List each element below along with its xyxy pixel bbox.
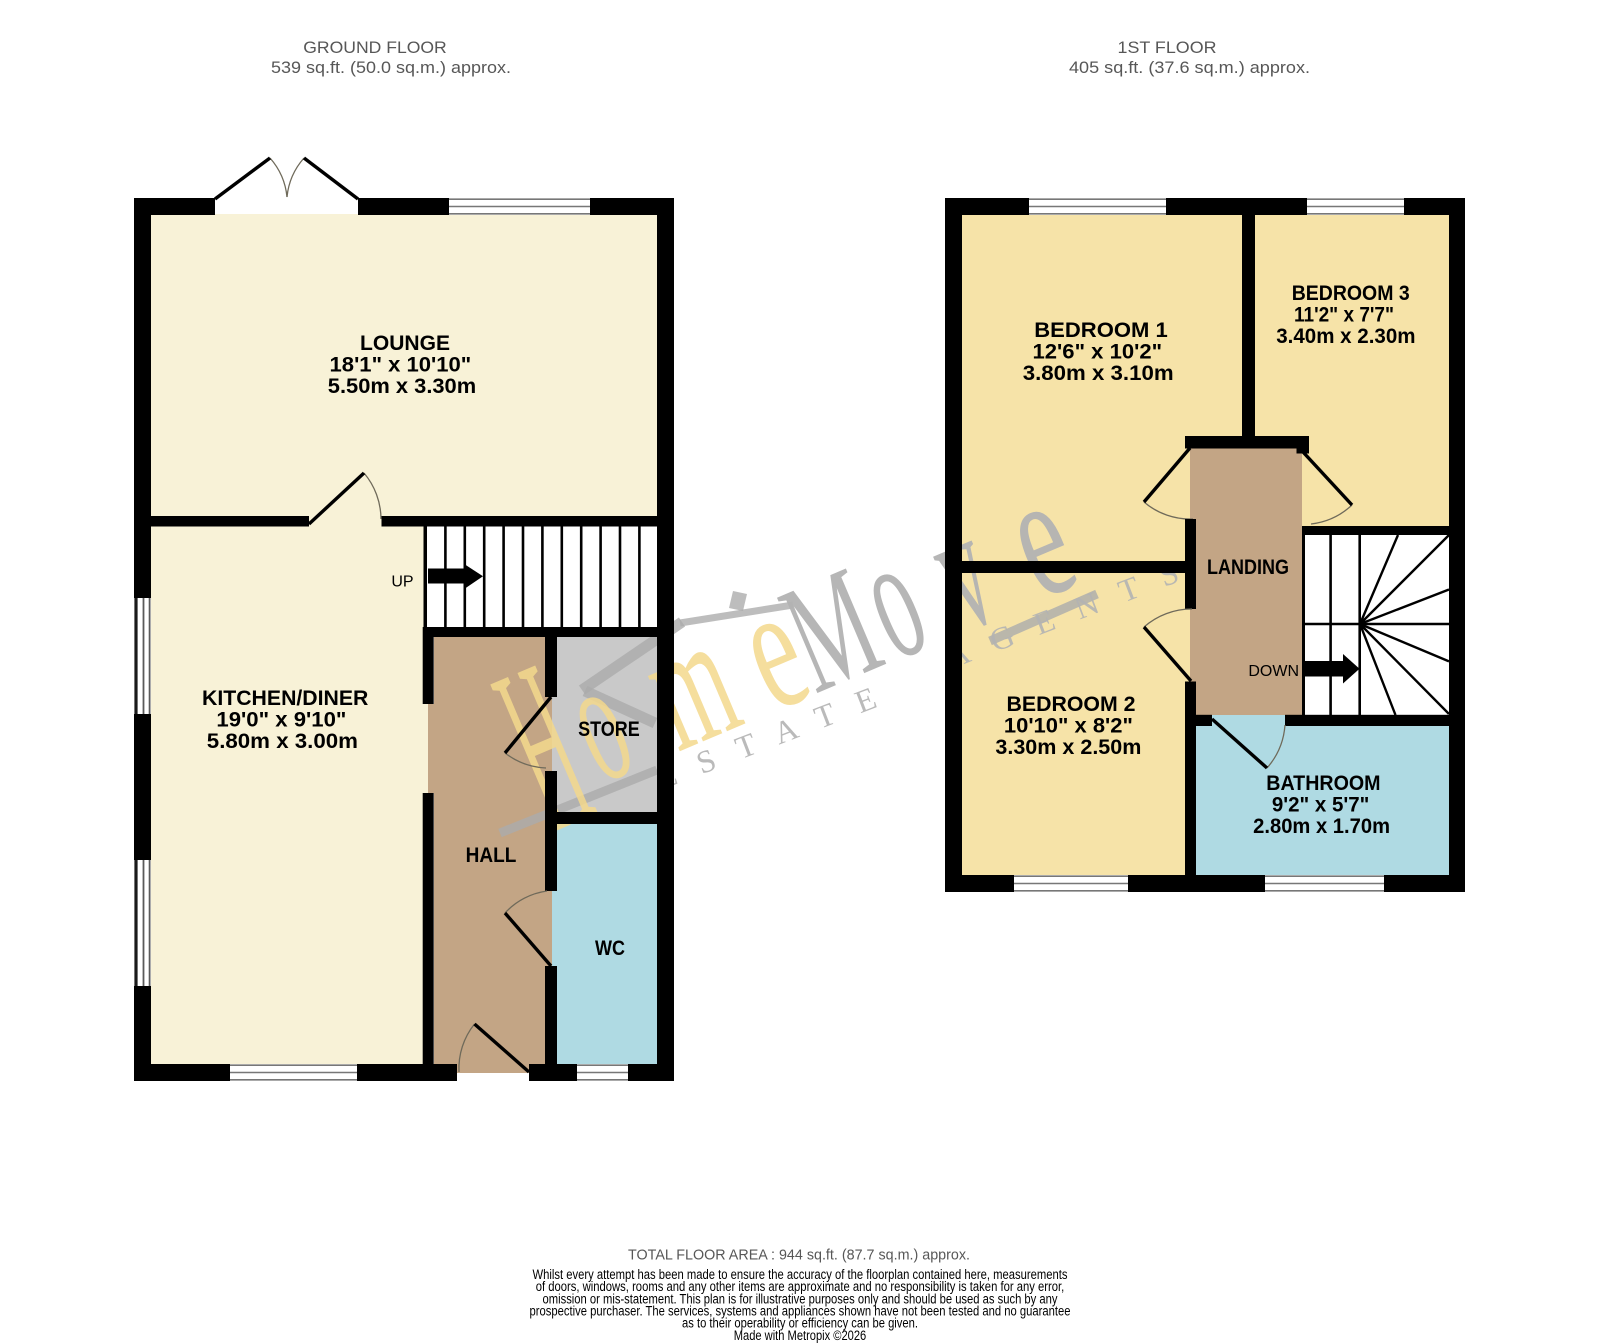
svg-text:1ST FLOOR: 1ST FLOOR bbox=[1118, 38, 1217, 57]
svg-text:3.40m x 2.30m: 3.40m x 2.30m bbox=[1276, 324, 1415, 348]
svg-text:9'2" x 5'7": 9'2" x 5'7" bbox=[1272, 793, 1370, 817]
svg-text:BATHROOM: BATHROOM bbox=[1266, 771, 1380, 795]
svg-text:LANDING: LANDING bbox=[1207, 555, 1289, 579]
svg-text:Made with Metropix ©2026: Made with Metropix ©2026 bbox=[734, 1328, 867, 1343]
svg-text:5.50m x 3.30m: 5.50m x 3.30m bbox=[328, 374, 476, 398]
svg-text:5.80m x 3.00m: 5.80m x 3.00m bbox=[207, 729, 358, 753]
svg-text:WC: WC bbox=[595, 936, 625, 960]
svg-text:DOWN: DOWN bbox=[1248, 663, 1299, 680]
svg-text:KITCHEN/DINER: KITCHEN/DINER bbox=[202, 686, 369, 710]
svg-text:18'1" x 10'10": 18'1" x 10'10" bbox=[330, 353, 472, 377]
svg-text:BEDROOM 3: BEDROOM 3 bbox=[1292, 281, 1410, 305]
svg-text:11'2" x 7'7": 11'2" x 7'7" bbox=[1294, 302, 1394, 326]
svg-text:10'10" x 8'2": 10'10" x 8'2" bbox=[1004, 714, 1133, 738]
svg-text:BEDROOM 1: BEDROOM 1 bbox=[1034, 318, 1168, 342]
svg-text:539 sq.ft. (50.0 sq.m.) approx: 539 sq.ft. (50.0 sq.m.) approx. bbox=[271, 58, 511, 77]
svg-text:3.30m x 2.50m: 3.30m x 2.50m bbox=[995, 735, 1141, 759]
svg-text:STORE: STORE bbox=[578, 717, 640, 741]
svg-text:2.80m x 1.70m: 2.80m x 1.70m bbox=[1253, 814, 1390, 838]
svg-text:HALL: HALL bbox=[466, 843, 517, 867]
svg-text:12'6" x 10'2": 12'6" x 10'2" bbox=[1033, 339, 1163, 363]
svg-text:BEDROOM 2: BEDROOM 2 bbox=[1007, 692, 1136, 716]
svg-text:GROUND FLOOR: GROUND FLOOR bbox=[303, 38, 447, 57]
svg-text:UP: UP bbox=[391, 574, 413, 591]
svg-text:LOUNGE: LOUNGE bbox=[360, 331, 450, 355]
svg-text:TOTAL FLOOR AREA : 944 sq.ft.: TOTAL FLOOR AREA : 944 sq.ft. (87.7 sq.m… bbox=[628, 1247, 970, 1264]
svg-text:3.80m x 3.10m: 3.80m x 3.10m bbox=[1023, 361, 1174, 385]
svg-text:19'0" x 9'10": 19'0" x 9'10" bbox=[216, 708, 346, 732]
svg-text:405 sq.ft. (37.6 sq.m.) approx: 405 sq.ft. (37.6 sq.m.) approx. bbox=[1069, 58, 1310, 77]
